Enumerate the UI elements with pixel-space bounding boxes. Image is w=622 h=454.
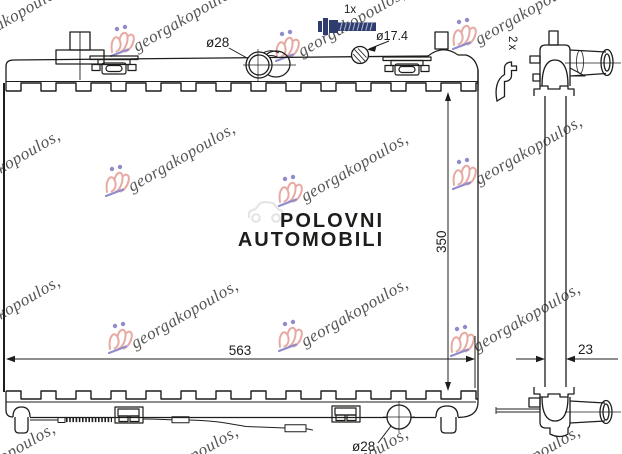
watermark-tile <box>106 119 239 196</box>
bottom-outlet-dome <box>436 406 458 417</box>
watermark-tile <box>0 126 64 203</box>
core-bottom-crimp <box>6 391 478 399</box>
leader-arrow <box>367 46 377 52</box>
dim-arrow <box>6 356 15 362</box>
side-top-arch <box>542 60 568 86</box>
watermark-tile <box>0 0 69 56</box>
label-inlet-diameter: ø28 <box>206 35 229 50</box>
radiator-catalog-drawing: georgakopoulos, POLOVNI AUTOMOBILI <box>0 0 622 454</box>
photo-watermark: POLOVNI AUTOMOBILI <box>238 202 384 251</box>
bottom-left-dome <box>13 407 30 417</box>
side-top-tab1 <box>530 56 540 63</box>
bottom-outlet-pipe <box>441 417 456 433</box>
watermark-tile <box>453 0 586 49</box>
dim-arrow <box>445 92 451 101</box>
watermark-tile <box>0 419 59 454</box>
radiator-side-view <box>496 31 621 437</box>
side-top-pin <box>549 31 558 45</box>
dim-arrow <box>566 356 575 362</box>
label-core-height: 350 <box>434 230 449 253</box>
dim-arrow <box>536 356 545 362</box>
dim-arrow <box>445 382 451 391</box>
label-clip-qty: 2x <box>506 36 518 52</box>
side-top-flange <box>534 86 574 96</box>
watermark-tile <box>109 422 242 454</box>
label-core-depth: 23 <box>578 342 593 357</box>
watermark-tile <box>279 274 412 351</box>
outlet-circle <box>383 401 415 433</box>
right-pin-dome <box>428 50 458 56</box>
leader-inlet <box>229 48 247 58</box>
wiring-harness <box>30 417 313 432</box>
drain-plug <box>352 47 369 64</box>
core-top-crimp <box>6 83 478 91</box>
bottom-connector-box-right <box>332 406 360 422</box>
side-top-tab2 <box>533 74 540 81</box>
watermark-tile <box>109 276 242 353</box>
label-drain-diameter: ø17.4 <box>376 29 408 43</box>
watermark-tile <box>279 129 412 206</box>
label-core-width: 563 <box>229 343 252 358</box>
top-bracket-middle <box>383 57 431 75</box>
side-bottom-arch <box>542 397 568 421</box>
right-mounting-pin <box>435 32 448 49</box>
label-screw-qty: 1x <box>344 4 356 16</box>
label-outlet-diameter: ø28 <box>352 439 375 454</box>
clip-icon <box>496 62 516 101</box>
side-drain-rod <box>496 407 540 414</box>
watermark-tile <box>451 422 584 454</box>
watermark-tile <box>451 279 584 356</box>
bottom-drain-plug <box>15 417 28 433</box>
side-bottom-flange <box>534 387 574 397</box>
watermark-tile <box>279 424 412 454</box>
side-top-hose <box>565 50 621 77</box>
car-icon <box>249 202 283 222</box>
side-bottom-tab <box>529 398 540 407</box>
watermark-tile <box>0 272 64 349</box>
side-top-tank <box>540 45 570 86</box>
bottom-connector-box-left <box>115 407 143 423</box>
side-bottom-hose <box>565 401 621 424</box>
dim-arrow <box>466 356 475 362</box>
photo-watermark-line2: AUTOMOBILI <box>238 229 384 251</box>
